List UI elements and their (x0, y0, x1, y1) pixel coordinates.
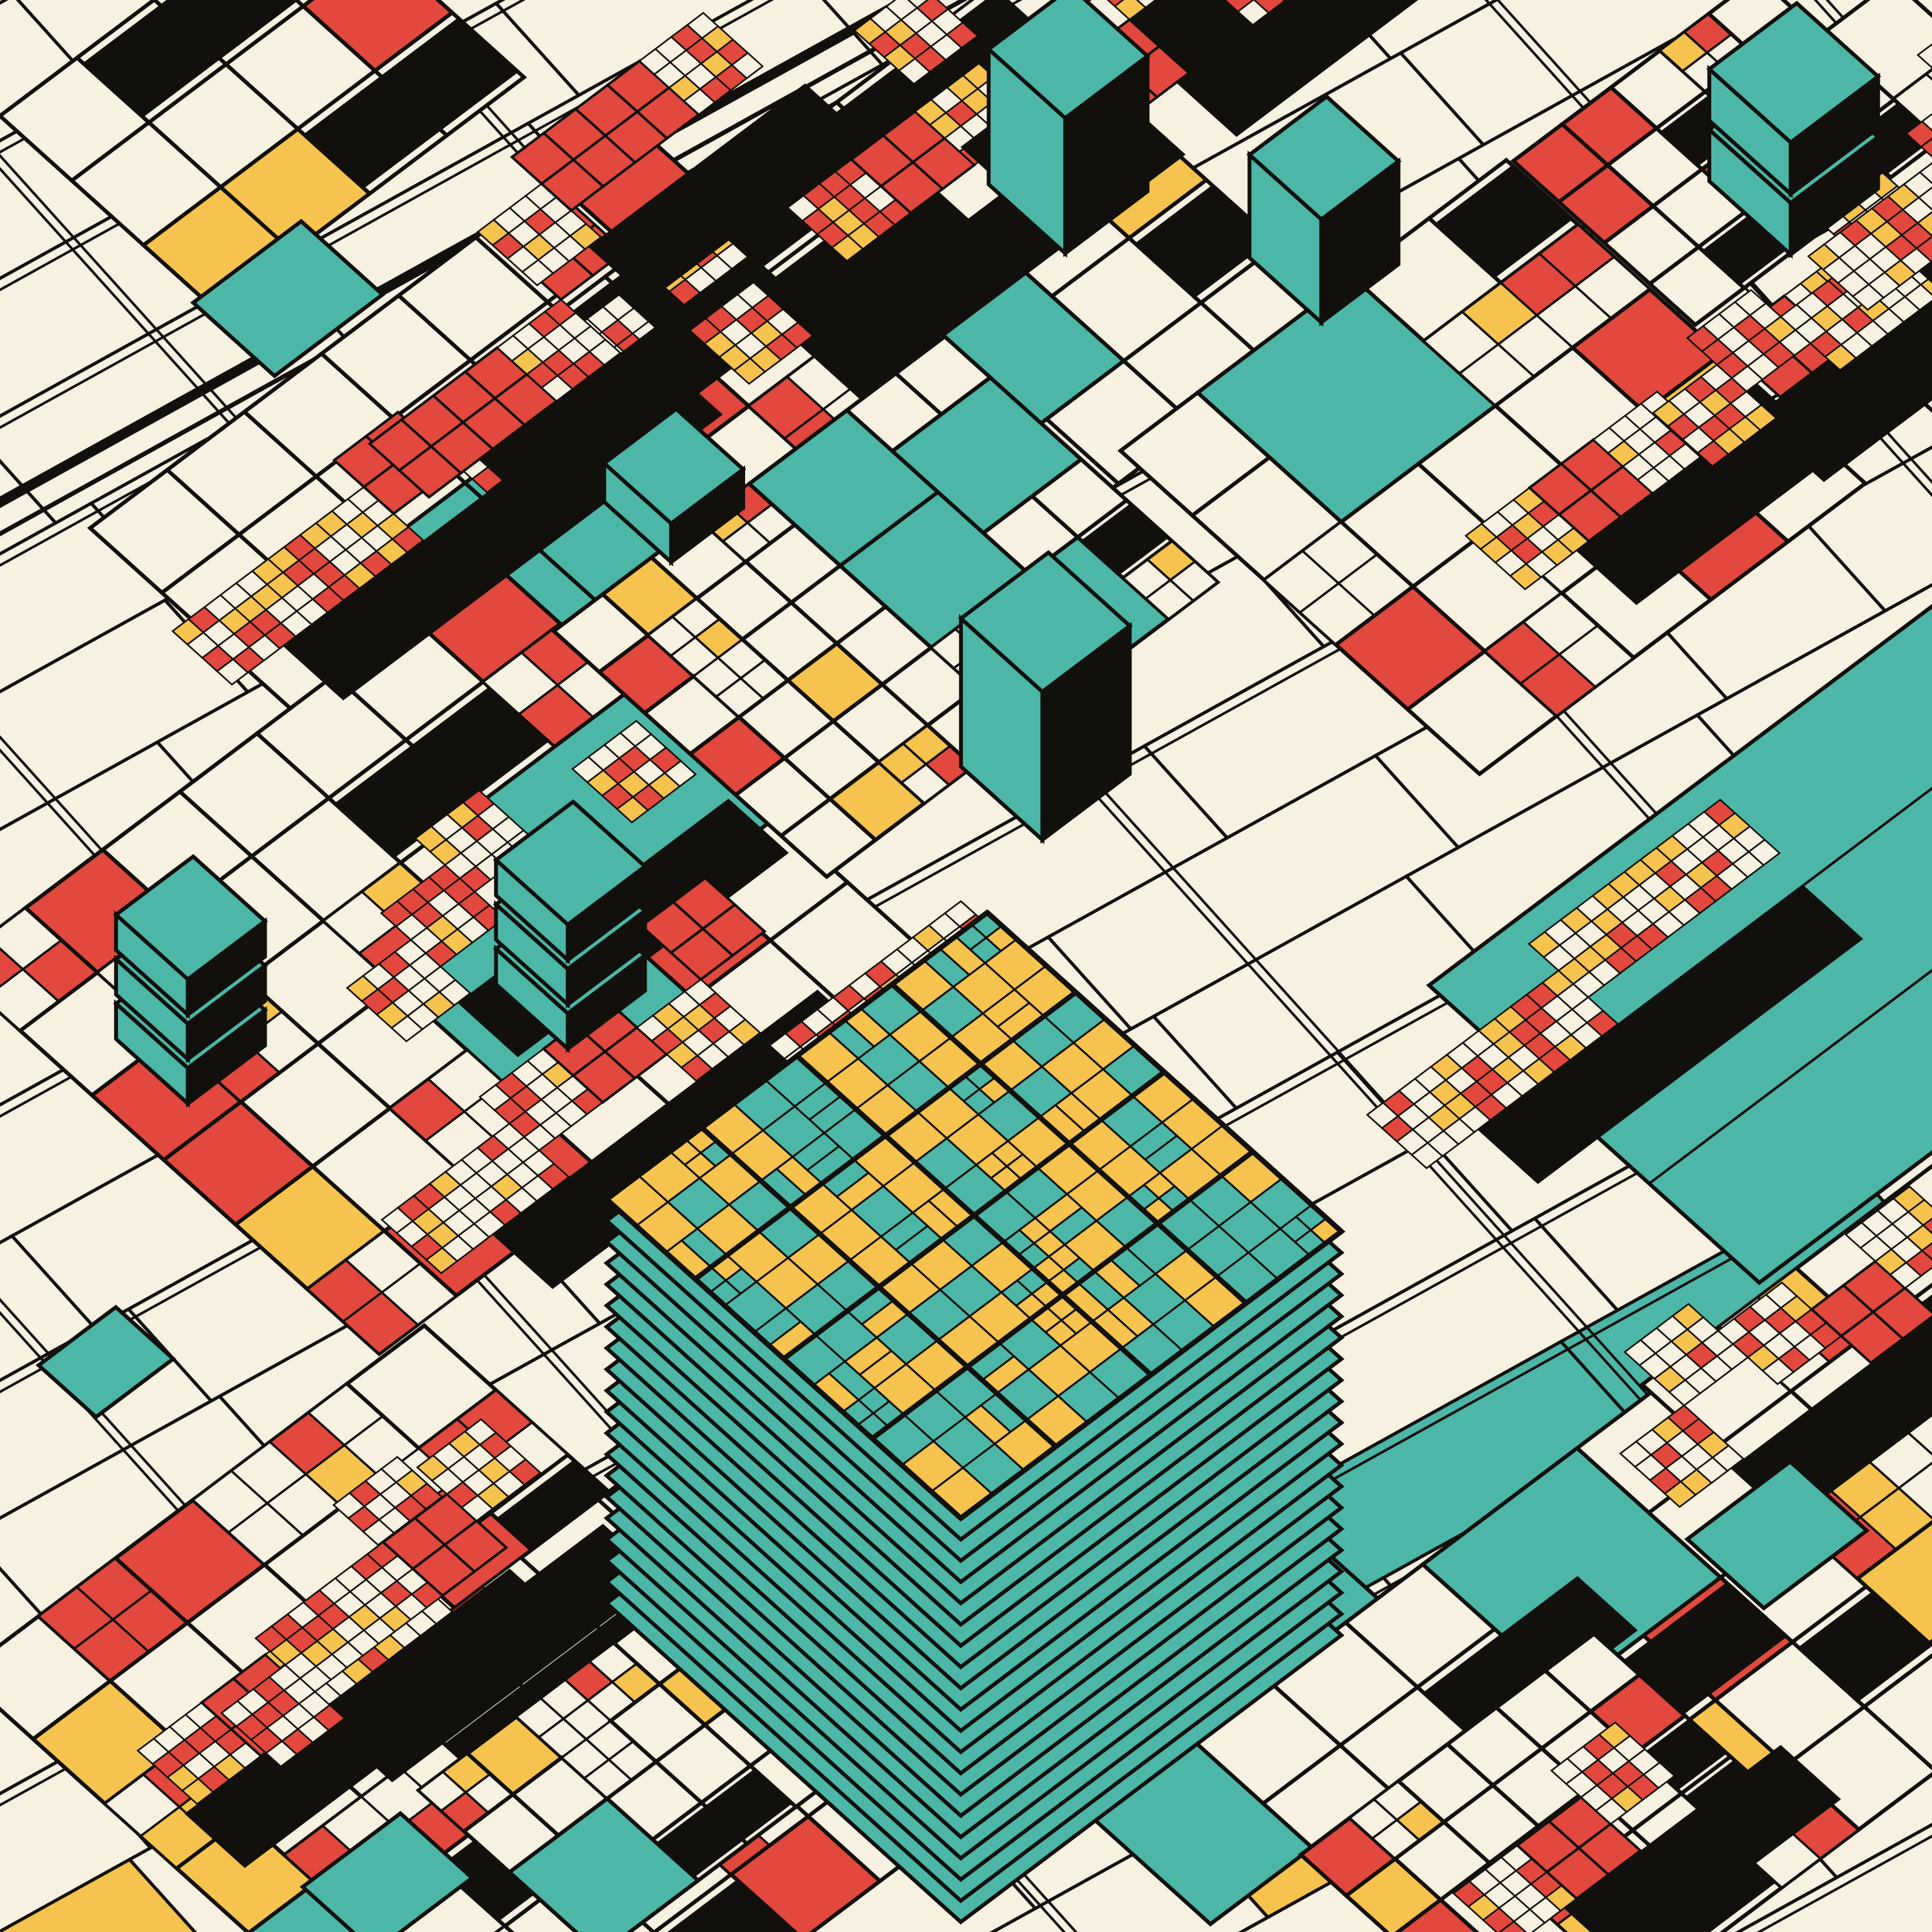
generative-artwork-canvas (0, 0, 1932, 1932)
artwork (0, 0, 1932, 1932)
